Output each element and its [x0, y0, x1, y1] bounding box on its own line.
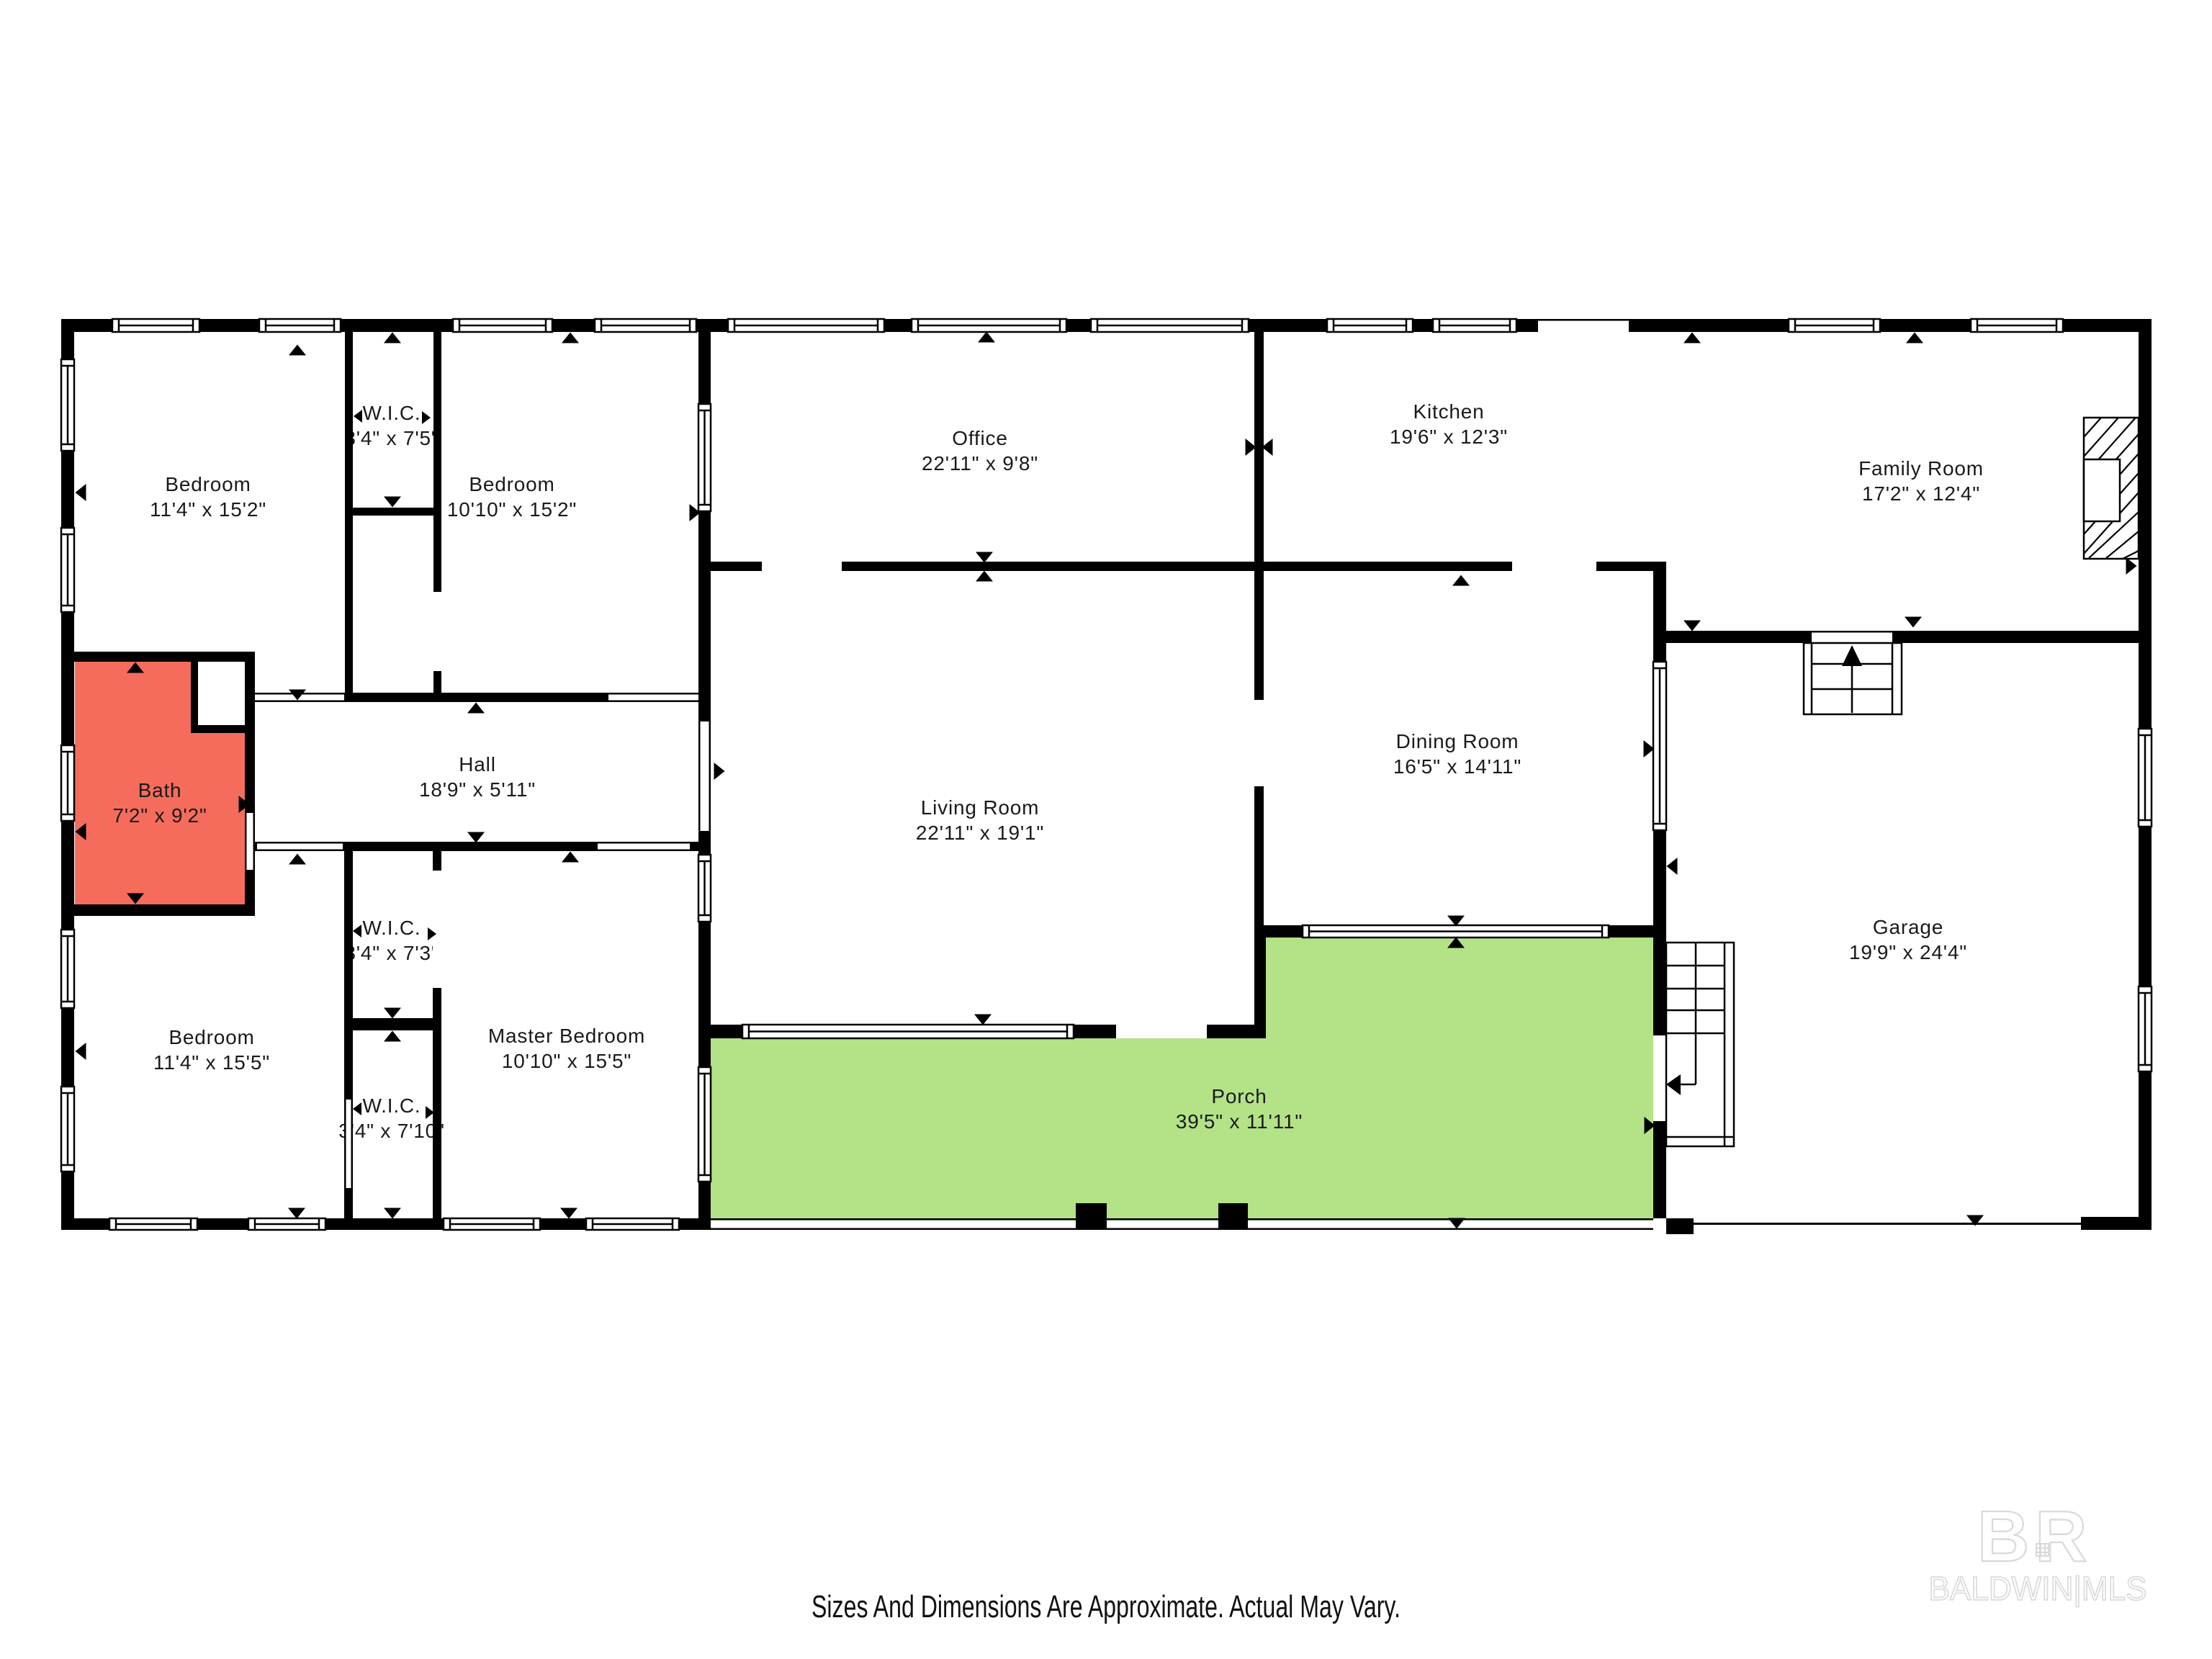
svg-text:3'4" x 7'5": 3'4" x 7'5"	[344, 427, 439, 449]
svg-text:Sizes And Dimensions Are Appro: Sizes And Dimensions Are Approximate. Ac…	[811, 1589, 1401, 1624]
svg-text:17'2" x 12'4": 17'2" x 12'4"	[1862, 482, 1980, 505]
svg-text:Hall: Hall	[459, 753, 495, 775]
svg-text:16'5" x 14'11": 16'5" x 14'11"	[1393, 755, 1521, 778]
svg-text:11'4" x 15'5": 11'4" x 15'5"	[153, 1051, 270, 1074]
svg-text:11'4" x 15'2": 11'4" x 15'2"	[150, 498, 266, 521]
svg-text:3'4" x 7'3": 3'4" x 7'3"	[344, 942, 439, 964]
svg-text:BALDWIN|MLS: BALDWIN|MLS	[1929, 1570, 2147, 1607]
svg-text:Family Room: Family Room	[1858, 457, 1984, 480]
svg-text:Kitchen: Kitchen	[1413, 400, 1485, 423]
svg-text:Porch: Porch	[1211, 1085, 1267, 1107]
svg-text:10'10" x 15'5": 10'10" x 15'5"	[502, 1050, 631, 1072]
svg-text:10'10" x 15'2": 10'10" x 15'2"	[447, 498, 577, 521]
svg-text:19'6" x 12'3": 19'6" x 12'3"	[1390, 426, 1508, 448]
svg-text:Master Bedroom: Master Bedroom	[488, 1025, 645, 1047]
svg-text:19'9" x 24'4": 19'9" x 24'4"	[1849, 941, 1967, 963]
svg-text:Bath: Bath	[138, 779, 182, 801]
svg-text:Bedroom: Bedroom	[168, 1026, 254, 1048]
svg-text:Bedroom: Bedroom	[165, 473, 251, 495]
svg-text:Living Room: Living Room	[921, 796, 1039, 819]
svg-text:Office: Office	[952, 427, 1007, 449]
svg-text:Bedroom: Bedroom	[469, 473, 554, 495]
svg-text:3'4" x 7'10": 3'4" x 7'10"	[338, 1120, 445, 1142]
svg-text:BR: BR	[1977, 1496, 2092, 1577]
svg-text:Garage: Garage	[1873, 916, 1943, 938]
svg-text:39'5" x 11'11": 39'5" x 11'11"	[1176, 1110, 1303, 1133]
svg-text:W.I.C.: W.I.C.	[362, 1094, 421, 1117]
svg-text:18'9" x 5'11": 18'9" x 5'11"	[419, 778, 536, 801]
svg-text:W.I.C.: W.I.C.	[362, 402, 421, 424]
svg-text:22'11" x 19'1": 22'11" x 19'1"	[916, 822, 1044, 844]
svg-text:7'2" x 9'2": 7'2" x 9'2"	[112, 804, 207, 827]
svg-text:Dining Room: Dining Room	[1396, 730, 1519, 752]
svg-text:W.I.C.: W.I.C.	[362, 917, 421, 939]
svg-text:22'11" x 9'8": 22'11" x 9'8"	[922, 452, 1038, 475]
